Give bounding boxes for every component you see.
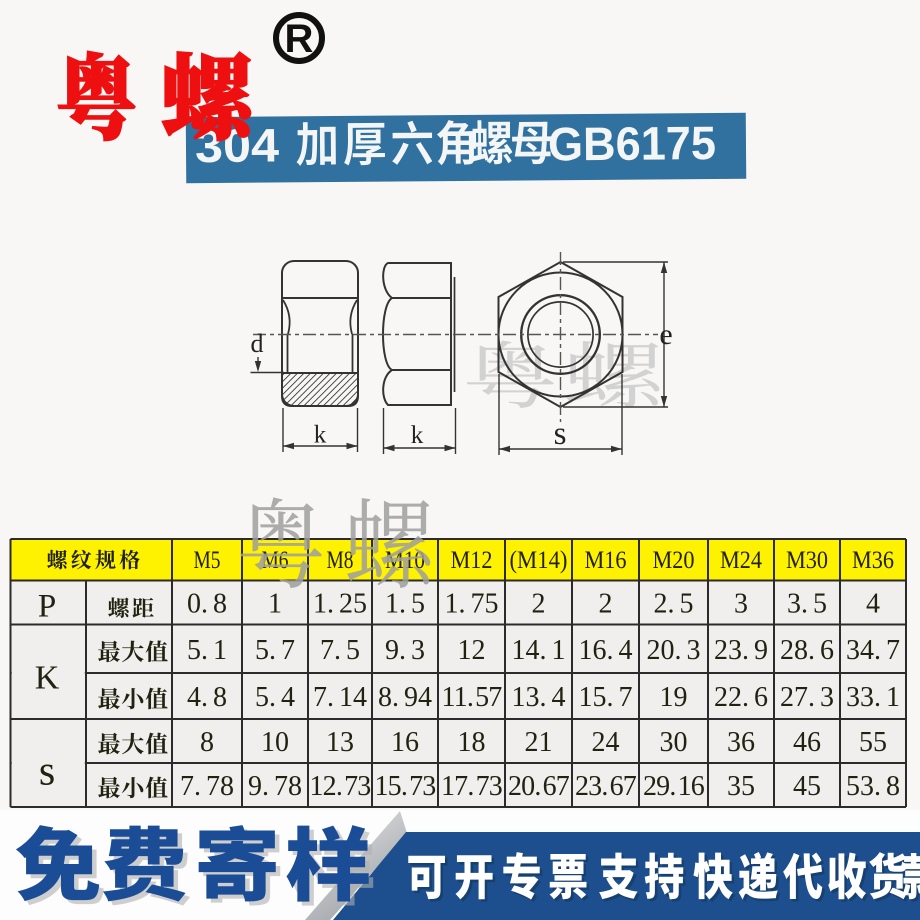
svg-text:20.67: 20.67 [508,771,570,802]
svg-text:M16: M16 [585,547,627,574]
svg-text:8: 8 [200,727,214,758]
svg-text:9.3: 9.3 [385,635,425,666]
svg-text:M20: M20 [653,547,695,574]
svg-text:7.14: 7.14 [313,682,367,713]
svg-text:2: 2 [532,589,546,620]
svg-text:P: P [38,589,56,625]
svg-text:33.1: 33.1 [846,682,900,713]
svg-text:23.67: 23.67 [575,771,637,802]
svg-text:10: 10 [261,727,289,758]
svg-text:30: 30 [660,727,688,758]
svg-text:4.8: 4.8 [187,682,227,713]
svg-text:k: k [411,422,424,449]
svg-text:46: 46 [793,727,821,758]
svg-text:20.3: 20.3 [647,635,701,666]
svg-text:55: 55 [859,727,887,758]
svg-text:53.8: 53.8 [846,771,900,802]
svg-text:12.73: 12.73 [309,771,370,802]
svg-text:R: R [285,17,314,61]
svg-text:28.6: 28.6 [780,635,834,666]
svg-text:34.7: 34.7 [846,635,900,666]
svg-text:(M14): (M14) [510,547,568,574]
svg-text:18: 18 [458,727,486,758]
svg-text:M8: M8 [327,547,354,574]
svg-text:1: 1 [268,589,282,620]
svg-text:1.25: 1.25 [313,589,367,620]
svg-text:45: 45 [793,771,821,802]
svg-text:8.94: 8.94 [378,682,432,713]
svg-text:1.5: 1.5 [385,589,425,620]
svg-text:e: e [659,318,672,351]
svg-text:9.78: 9.78 [248,771,302,802]
svg-text:16: 16 [391,727,419,758]
svg-text:K: K [35,660,60,697]
svg-text:1.75: 1.75 [445,589,499,620]
svg-text:3.5: 3.5 [787,589,827,620]
svg-text:29.16: 29.16 [643,771,705,802]
svg-text:23.9: 23.9 [714,635,768,666]
svg-text:M30: M30 [786,547,828,574]
svg-text:13: 13 [326,727,354,758]
svg-text:GB6175: GB6175 [548,116,716,170]
svg-text:11.57: 11.57 [442,682,503,713]
svg-text:19: 19 [660,682,688,713]
svg-text:21: 21 [525,727,553,758]
svg-text:3: 3 [734,589,748,620]
svg-text:0.8: 0.8 [187,589,227,620]
svg-text:36: 36 [727,727,755,758]
svg-text:5.1: 5.1 [187,635,227,666]
svg-text:24: 24 [592,727,620,758]
svg-text:4: 4 [866,589,880,620]
svg-text:14.1: 14.1 [512,635,566,666]
svg-text:12: 12 [458,635,486,666]
svg-text:d: d [251,329,264,358]
svg-text:15.7: 15.7 [579,682,633,713]
svg-text:13.4: 13.4 [512,682,566,713]
svg-text:M36: M36 [852,547,894,574]
svg-text:17.73: 17.73 [441,771,502,802]
svg-text:5.7: 5.7 [255,635,295,666]
svg-text:2.5: 2.5 [654,589,694,620]
svg-text:2: 2 [599,589,613,620]
svg-text:27.3: 27.3 [780,682,834,713]
svg-text:15.73: 15.73 [374,771,435,802]
svg-text:M24: M24 [720,547,762,574]
svg-text:7.78: 7.78 [180,771,234,802]
svg-text:5.4: 5.4 [255,682,295,713]
svg-text:s: s [554,416,567,452]
svg-text:k: k [314,422,327,449]
svg-text:16.4: 16.4 [579,635,633,666]
svg-text:M5: M5 [194,547,221,574]
svg-text:M12: M12 [451,547,493,574]
svg-text:7.5: 7.5 [320,635,360,666]
svg-text:35: 35 [727,771,755,802]
svg-text:22.6: 22.6 [714,682,768,713]
svg-text:s: s [39,749,55,795]
